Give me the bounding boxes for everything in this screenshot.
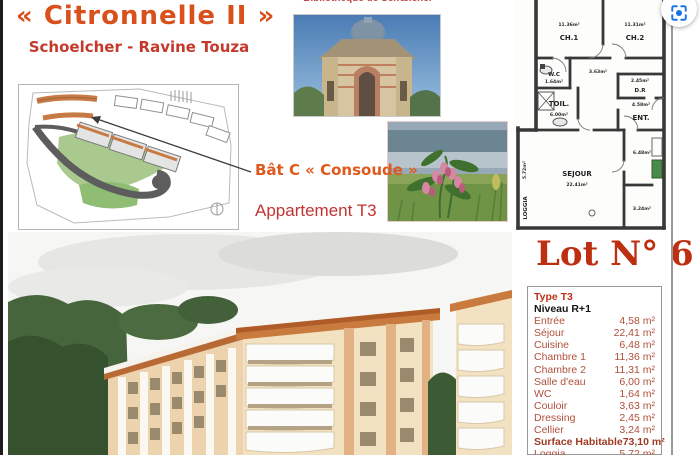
svg-text:SEJOUR: SEJOUR	[562, 170, 592, 178]
apartment-type-label: Appartement T3	[255, 201, 377, 221]
type-label: Type T3	[534, 291, 573, 303]
svg-text:6.00m²: 6.00m²	[550, 112, 568, 118]
library-photo	[293, 14, 441, 117]
table-row: Loggia5,72 m²	[534, 448, 655, 455]
svg-text:11.31m²: 11.31m²	[624, 22, 645, 28]
surface-table: Type T3 Niveau R+1 Entrée4,58 m² Séjour2…	[527, 286, 662, 455]
svg-text:4.58m²: 4.58m²	[632, 102, 650, 108]
table-level-row: Niveau R+1	[534, 303, 655, 315]
table-row-surface-habitable: Surface Habitable73,10 m²	[534, 436, 655, 448]
svg-text:2.45m²: 2.45m²	[631, 78, 649, 84]
library-photo-caption: Bibliothèque de Schœlcher	[293, 0, 443, 4]
lens-icon	[670, 4, 688, 22]
svg-text:3.24m²: 3.24m²	[633, 206, 651, 212]
svg-text:22.41m²: 22.41m²	[566, 182, 587, 188]
svg-text:5.72m²: 5.72m²	[522, 161, 528, 179]
svg-text:TOIL.: TOIL.	[549, 100, 569, 108]
svg-text:11.36m²: 11.36m²	[558, 22, 579, 28]
brochure-page: « Citronnelle II » Schoelcher - Ravine T…	[0, 0, 700, 455]
svg-text:CH.2: CH.2	[626, 34, 645, 42]
lot-title: Lot N° 6	[536, 234, 668, 274]
page-left-border	[0, 0, 3, 455]
svg-text:3.63m²: 3.63m²	[589, 69, 607, 75]
page-subtitle: Schoelcher - Ravine Touza	[26, 38, 252, 56]
table-row: Entrée4,58 m²	[534, 315, 655, 327]
svg-text:6.48m²: 6.48m²	[633, 150, 651, 156]
building-label: Bât C « Consoude »	[255, 161, 418, 179]
svg-text:W.C: W.C	[548, 72, 560, 78]
table-row: Séjour22,41 m²	[534, 327, 655, 339]
table-row: Cuisine6,48 m²	[534, 339, 655, 351]
svg-text:1.64m²: 1.64m²	[545, 79, 563, 85]
residence-photo	[8, 232, 512, 455]
table-row: WC1,64 m²	[534, 388, 655, 400]
site-plan-image	[18, 84, 239, 230]
table-row: Salle d'eau6,00 m²	[534, 376, 655, 388]
svg-text:D.R: D.R	[635, 88, 647, 94]
table-type-row: Type T3	[534, 291, 655, 303]
svg-text:LOGGIA: LOGGIA	[523, 196, 529, 220]
svg-text:ENT.: ENT.	[632, 114, 649, 122]
table-row: Dressing2,45 m²	[534, 412, 655, 424]
svg-text:CH.1: CH.1	[560, 34, 579, 42]
table-row: Chambre 111,36 m²	[534, 351, 655, 363]
table-row: Couloir3,63 m²	[534, 400, 655, 412]
page-edge-divider	[671, 0, 673, 455]
page-title: « Citronnelle II »	[16, 1, 262, 31]
level-label: Niveau R+1	[534, 303, 591, 315]
floor-plan-image: 11.36m² CH.1 11.31m² CH.2 3.63m² W.C 1.6…	[514, 0, 672, 230]
table-row: Chambre 211,31 m²	[534, 364, 655, 376]
table-row: Cellier3,24 m²	[534, 424, 655, 436]
